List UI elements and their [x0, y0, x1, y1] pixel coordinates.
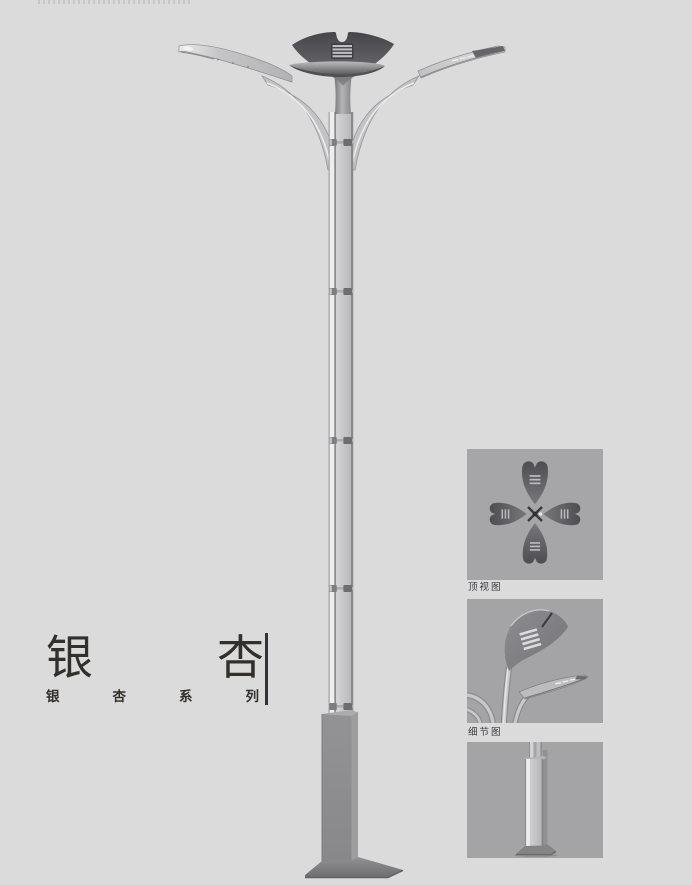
product-title: 银 杏: [46, 632, 264, 684]
product-title-char-2: 杏: [217, 632, 264, 684]
base-view-image: [467, 742, 603, 858]
product-title-char-1: 银: [46, 632, 93, 684]
lamp-arm-right: [346, 76, 419, 170]
panel-base-view: [467, 742, 603, 858]
panel-detail-view-caption: 细节图: [468, 726, 503, 740]
catalog-page: 顶视图: [0, 0, 692, 885]
lamp-head-left: [179, 45, 292, 82]
lamp-crown: [289, 32, 394, 114]
detail-view-image: [467, 599, 603, 723]
title-divider-line: [265, 633, 268, 705]
series-subtitle: 银 杏 系 列: [46, 688, 259, 706]
pole-base: [305, 710, 403, 878]
series-char-1: 银: [46, 688, 60, 706]
series-char-3: 系: [179, 688, 193, 706]
top-view-image: [467, 449, 603, 580]
crown-louvers: [331, 44, 354, 60]
lamp-arm-left: [262, 76, 338, 170]
panel-detail-view: [467, 599, 603, 723]
series-char-2: 杏: [113, 688, 127, 706]
series-char-4: 列: [246, 688, 260, 706]
pole: [329, 112, 354, 714]
panel-top-view-caption: 顶视图: [468, 581, 503, 595]
lamp-head-right: [418, 46, 505, 78]
base-plate: [305, 857, 403, 878]
panel-top-view: [467, 449, 603, 580]
